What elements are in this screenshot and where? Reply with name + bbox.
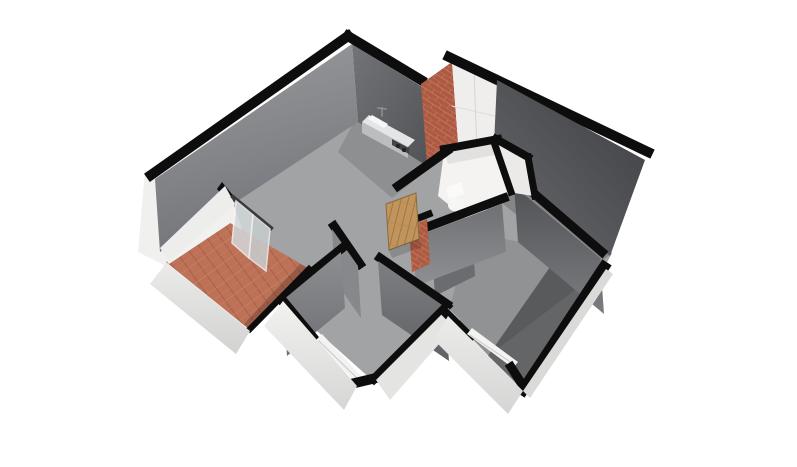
floorplan-render-canvas — [0, 0, 797, 467]
kitchen-burner-right — [402, 148, 407, 152]
apartment-cutaway — [138, 36, 648, 414]
kitchen-burner-left — [396, 144, 401, 148]
floorplan-3d-view — [0, 0, 797, 467]
kitchen-faucet-spout — [378, 108, 386, 109]
